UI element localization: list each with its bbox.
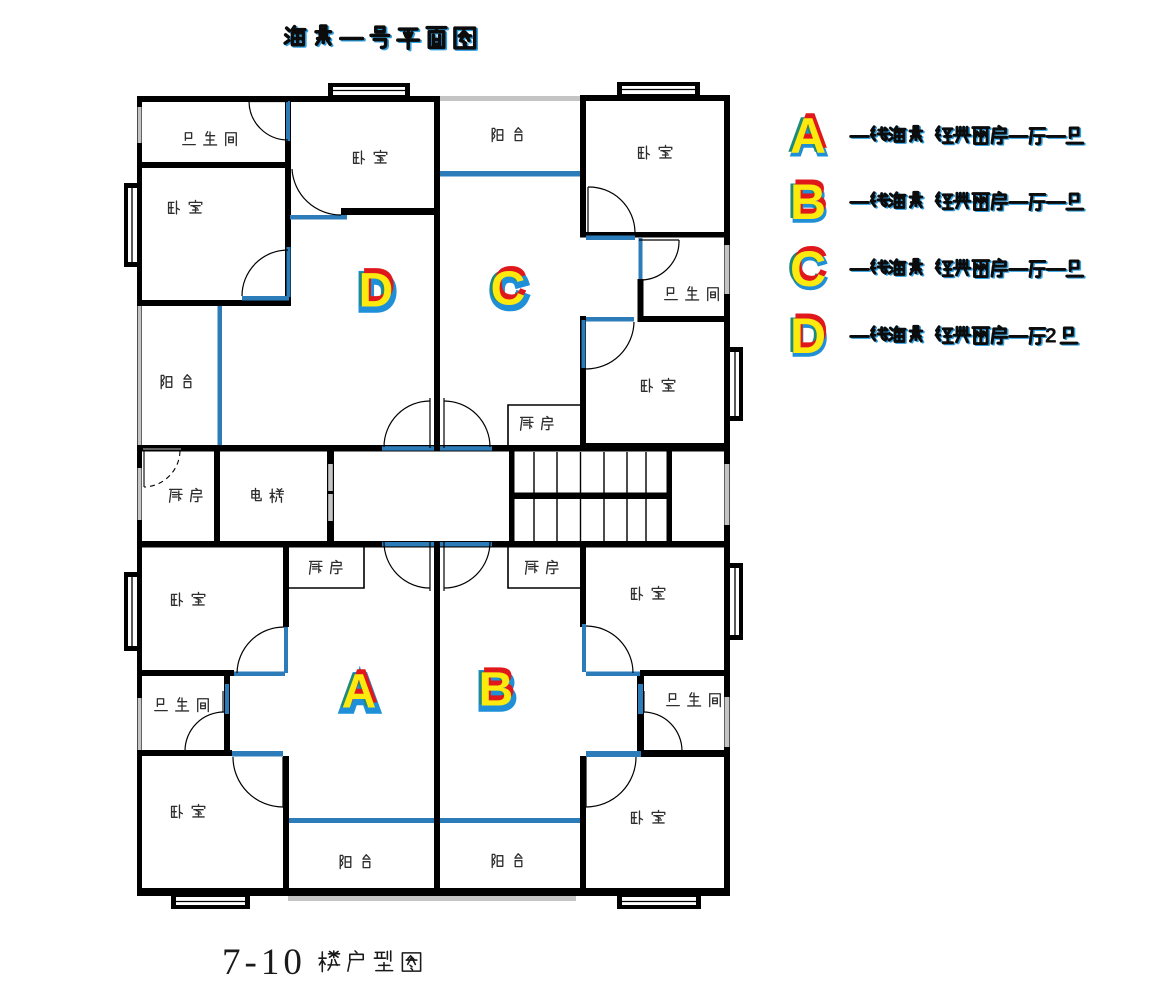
svg-text:B: B bbox=[479, 664, 514, 717]
svg-text:D: D bbox=[790, 308, 826, 364]
svg-text:D: D bbox=[359, 265, 394, 318]
svg-text:C: C bbox=[790, 241, 826, 297]
svg-text:A: A bbox=[342, 666, 377, 719]
svg-text:7-10: 7-10 bbox=[222, 942, 306, 983]
svg-text:A: A bbox=[790, 108, 826, 164]
svg-text:B: B bbox=[790, 174, 826, 230]
svg-text:C: C bbox=[491, 263, 526, 316]
svg-text:2: 2 bbox=[1045, 325, 1057, 348]
